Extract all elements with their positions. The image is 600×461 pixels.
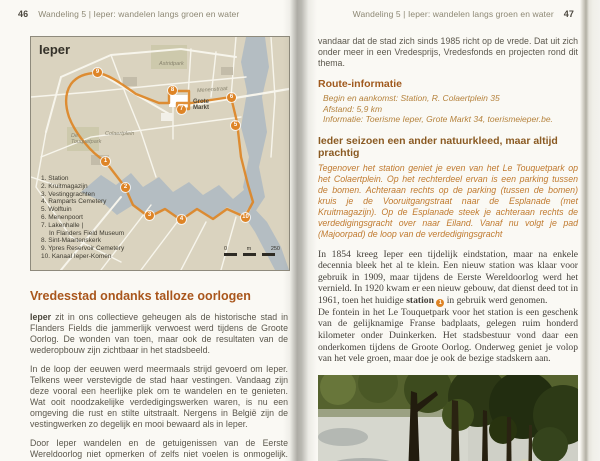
legend-item: 10. Kanaal Ieper-Komen — [41, 253, 124, 261]
paragraph: In 1854 kreeg Ieper een tijdelijk eindst… — [318, 249, 578, 307]
scale-segments — [224, 253, 280, 256]
map-label-touquetpark: De Touquetpark — [71, 133, 101, 145]
route-info-distance: Afstand: 5,9 km — [318, 104, 578, 115]
legend-item: 6. Menenpoort — [41, 214, 124, 222]
legend-item-continuation: In Flanders Field Museum — [41, 230, 124, 238]
lead-word: Ieper — [30, 312, 51, 322]
route-info-label: Afstand: — [323, 104, 354, 114]
map-marker-6: 6 — [227, 93, 236, 102]
map-marker-1: 1 — [101, 157, 110, 166]
right-page-header: Wandeling 5 | Ieper: wandelen langs groe… — [353, 9, 574, 19]
legend-item: 9. Ypres Reservoir Cemetery — [41, 245, 124, 253]
left-section-title: Vredesstad ondanks talloze oorlogen — [30, 289, 288, 303]
map-marker-8: 8 — [168, 86, 177, 95]
map-marker-3: 3 — [145, 211, 154, 220]
paragraph: De fontein in het Le Touquetpark voor he… — [318, 307, 578, 365]
paragraph-text: in gebruik werd genomen. — [444, 295, 547, 306]
right-page-number: 47 — [564, 9, 574, 19]
station-bold: station — [406, 295, 434, 306]
legend-item: 3. Vestinggrachten — [41, 191, 124, 199]
right-text-column: vandaar dat de stad zich sinds 1985 rich… — [318, 36, 578, 461]
legend-item: 5. Wolftuin — [41, 206, 124, 214]
legend-item: 2. Kruitmagazijn — [41, 183, 124, 191]
map-marker-9: 9 — [93, 68, 102, 77]
right-running-title: Wandeling 5 | Ieper: wandelen langs groe… — [353, 9, 554, 19]
route-info-value: Toerisme Ieper, Grote Markt 34, toerisme… — [363, 114, 553, 124]
route-info-label: Begin en aankomst: — [323, 93, 398, 103]
legend-item: 1. Station — [41, 175, 124, 183]
route-info-label: Informatie: — [323, 114, 363, 124]
map-label-grote-markt: Grote Markt — [193, 99, 219, 111]
route-info-title: Route-informatie — [318, 78, 578, 90]
route-info-value: 5,9 km — [354, 104, 382, 114]
scale-unit: m — [247, 246, 252, 252]
map-legend: 1. Station 2. Kruitmagazijn 3. Vestinggr… — [41, 175, 124, 261]
photo-illustration — [318, 375, 578, 461]
map-marker-5: 5 — [231, 121, 240, 130]
left-running-title: Wandeling 5 | Ieper: wandelen langs groe… — [38, 9, 239, 19]
intro-paragraph: vandaar dat de stad zich sinds 1985 rich… — [318, 36, 578, 69]
page-edge — [578, 0, 600, 461]
route-description-highlight: Tegenover het station geniet je even van… — [318, 163, 578, 240]
map-scale-bar: 0 m 250 — [224, 246, 280, 256]
route-info-value: Station, R. Colaertplein 35 — [398, 93, 500, 103]
left-page-number: 46 — [18, 9, 28, 19]
map-marker-7: 7 — [177, 105, 186, 114]
map-marker-4: 4 — [177, 215, 186, 224]
city-map: Ieper Astridpark Grote Markt Menenstraat… — [30, 36, 290, 271]
paragraph-text: zit in ons collectieve geheugen als de h… — [30, 312, 288, 355]
map-title: Ieper — [39, 42, 70, 57]
paragraph: In de loop der eeuwen werd meermaals str… — [30, 364, 288, 430]
legend-item: 7. Lakenhalle | — [41, 222, 124, 230]
left-text-column: Vredesstad ondanks talloze oorlogen Iepe… — [30, 289, 288, 461]
legend-item: 8. Sint-Maartenskerk — [41, 237, 124, 245]
scale-zero: 0 — [224, 246, 227, 252]
scale-end: 250 — [271, 246, 280, 252]
legend-item: 4. Ramparts Cemetery — [41, 198, 124, 206]
book-spread: 46Wandeling 5 | Ieper: wandelen langs gr… — [0, 0, 600, 461]
photo-vesten — [318, 375, 578, 461]
map-label-colaertplein: Colaertplein — [105, 131, 131, 137]
route-info-start: Begin en aankomst: Station, R. Colaertpl… — [318, 93, 578, 104]
paragraph: Door Ieper wandelen en de getuigenissen … — [30, 438, 288, 461]
right-section-title: Ieder seizoen een ander natuurkleed, maa… — [318, 135, 578, 159]
route-info-contact: Informatie: Toerisme Ieper, Grote Markt … — [318, 114, 578, 125]
left-page-header: 46Wandeling 5 | Ieper: wandelen langs gr… — [18, 9, 239, 19]
history-text: In 1854 kreeg Ieper een tijdelijk eindst… — [318, 249, 578, 365]
paragraph: Ieper zit in ons collectieve geheugen al… — [30, 312, 288, 356]
map-label-astridpark: Astridpark — [159, 61, 184, 67]
map-marker-10: 10 — [241, 213, 250, 222]
